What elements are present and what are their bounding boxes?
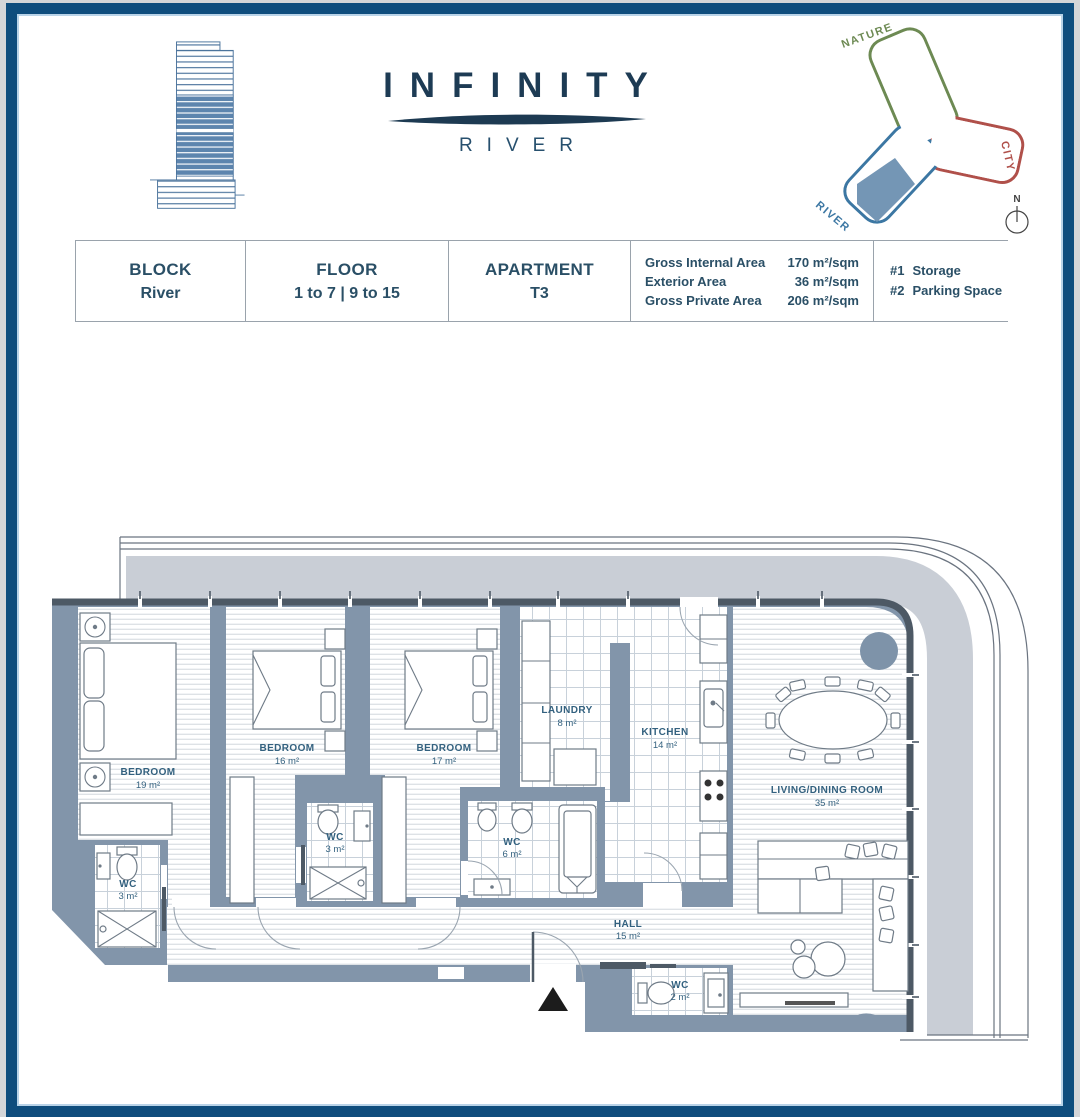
room-label: BEDROOM [259,743,314,754]
area-value: 36 m²/sqm [795,272,859,291]
room-area: 17 m² [432,756,456,767]
compass-icon: N [1006,194,1028,233]
logo-title: INFINITY [361,66,687,106]
floor-cell: FLOOR 1 to 7 | 9 to 15 [246,241,449,321]
apartment-cell: APARTMENT T3 [449,241,631,321]
room-area: 3 m² [326,844,345,855]
room-area: 8 m² [558,718,577,729]
room-label: WC [119,879,136,890]
extra-num: #2 [890,281,904,301]
entrance-arrow [538,987,568,1011]
swoosh-icon [386,112,648,127]
area-row: Gross Private Area 206 m²/sqm [645,291,859,310]
area-label: Exterior Area [645,272,726,291]
compass-n-label: N [1013,194,1020,205]
room-label: BEDROOM [416,743,471,754]
area-row: Gross Internal Area 170 m²/sqm [645,253,859,272]
extra-row: #2 Parking Space [890,281,1002,301]
area-value: 206 m²/sqm [787,291,859,310]
areas-cell: Gross Internal Area 170 m²/sqm Exterior … [631,241,874,321]
block-label: BLOCK [129,260,191,280]
extra-row: #1 Storage [890,261,961,281]
river-label: RIVER [813,199,852,235]
room-label: LIVING/DINING ROOM [771,785,883,796]
apartment-value: T3 [530,285,549,303]
apartment-label: APARTMENT [485,260,594,280]
area-value: 170 m²/sqm [787,253,859,272]
room-area: 2 m² [671,992,690,1003]
room-label: WC [326,832,343,843]
room-label: BEDROOM [120,767,175,778]
block-cell: BLOCK River [76,241,246,321]
room-area: 15 m² [616,931,640,942]
floor-value: 1 to 7 | 9 to 15 [294,285,400,303]
room-label: KITCHEN [641,727,688,738]
site-diagram: NATURE CITY RIVER N [795,16,1045,246]
floor-plan: BEDROOM 19 m² BEDROOM 16 m² BEDROOM 17 m… [40,535,1040,1047]
brochure-page: INFINITY RIVER NATURE CITY RIVER N BLOC [6,3,1074,1117]
room-label: LAUNDRY [541,705,592,716]
logo-subtitle: RIVER [359,135,687,157]
extras-cell: #1 Storage #2 Parking Space [874,241,1008,321]
room-label: WC [671,980,688,991]
extra-label: Storage [912,261,960,281]
room-label: WC [503,837,520,848]
area-row: Exterior Area 36 m²/sqm [645,272,859,291]
extra-label: Parking Space [912,281,1002,301]
room-label: HALL [614,919,642,930]
block-value: River [140,285,180,303]
building-tower-icon [150,30,254,224]
room-area: 6 m² [503,849,522,860]
room-area: 19 m² [136,780,160,791]
room-area: 16 m² [275,756,299,767]
floor-label: FLOOR [316,260,378,280]
area-label: Gross Private Area [645,291,762,310]
room-area: 14 m² [653,740,677,751]
room-area: 35 m² [815,798,839,809]
area-label: Gross Internal Area [645,253,765,272]
extra-num: #1 [890,261,904,281]
info-table: BLOCK River FLOOR 1 to 7 | 9 to 15 APART… [75,240,1008,322]
room-area: 3 m² [119,891,138,902]
column [860,632,898,670]
logo: INFINITY RIVER [347,66,687,157]
